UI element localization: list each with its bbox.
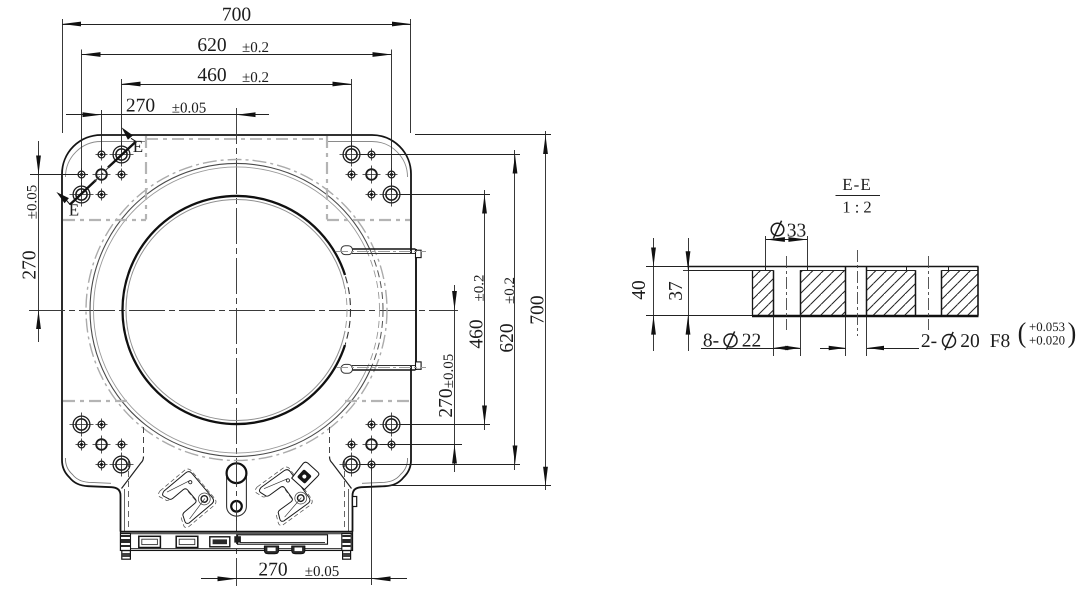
svg-text:±0.05: ±0.05 — [441, 354, 457, 388]
svg-text:±0.05: ±0.05 — [172, 100, 206, 116]
svg-text:1 : 2: 1 : 2 — [842, 197, 871, 216]
svg-text:270: 270 — [20, 250, 41, 279]
svg-text:460: 460 — [197, 65, 226, 86]
svg-text:270: 270 — [436, 388, 457, 417]
svg-text:8-: 8- — [703, 330, 719, 351]
svg-text:2-: 2- — [921, 331, 937, 352]
svg-text:E: E — [133, 137, 143, 156]
svg-text:270: 270 — [258, 559, 287, 580]
svg-text:): ) — [1068, 317, 1077, 348]
svg-text:(: ( — [1018, 317, 1027, 348]
svg-text:33: 33 — [787, 220, 807, 241]
svg-text:700: 700 — [222, 4, 251, 25]
svg-text:22: 22 — [742, 330, 762, 351]
svg-text:+0.053: +0.053 — [1029, 320, 1065, 334]
svg-text:±0.2: ±0.2 — [242, 70, 269, 86]
svg-text:±0.05: ±0.05 — [305, 564, 339, 580]
svg-text:±0.2: ±0.2 — [502, 277, 518, 304]
svg-text:700: 700 — [528, 295, 549, 324]
svg-text:620: 620 — [197, 35, 226, 56]
svg-text:40: 40 — [629, 280, 650, 300]
svg-text:±0.05: ±0.05 — [25, 185, 41, 219]
svg-text:+0.020: +0.020 — [1029, 333, 1065, 347]
svg-text:270: 270 — [126, 95, 155, 116]
svg-text:F8: F8 — [990, 331, 1011, 352]
svg-text:620: 620 — [497, 323, 518, 352]
svg-text:37: 37 — [666, 281, 687, 301]
svg-text:460: 460 — [467, 319, 488, 348]
svg-text:±0.2: ±0.2 — [472, 275, 488, 302]
svg-text:E-E: E-E — [842, 175, 871, 194]
svg-text:E: E — [69, 200, 79, 219]
svg-text:±0.2: ±0.2 — [242, 40, 269, 56]
svg-text:20: 20 — [960, 331, 980, 352]
